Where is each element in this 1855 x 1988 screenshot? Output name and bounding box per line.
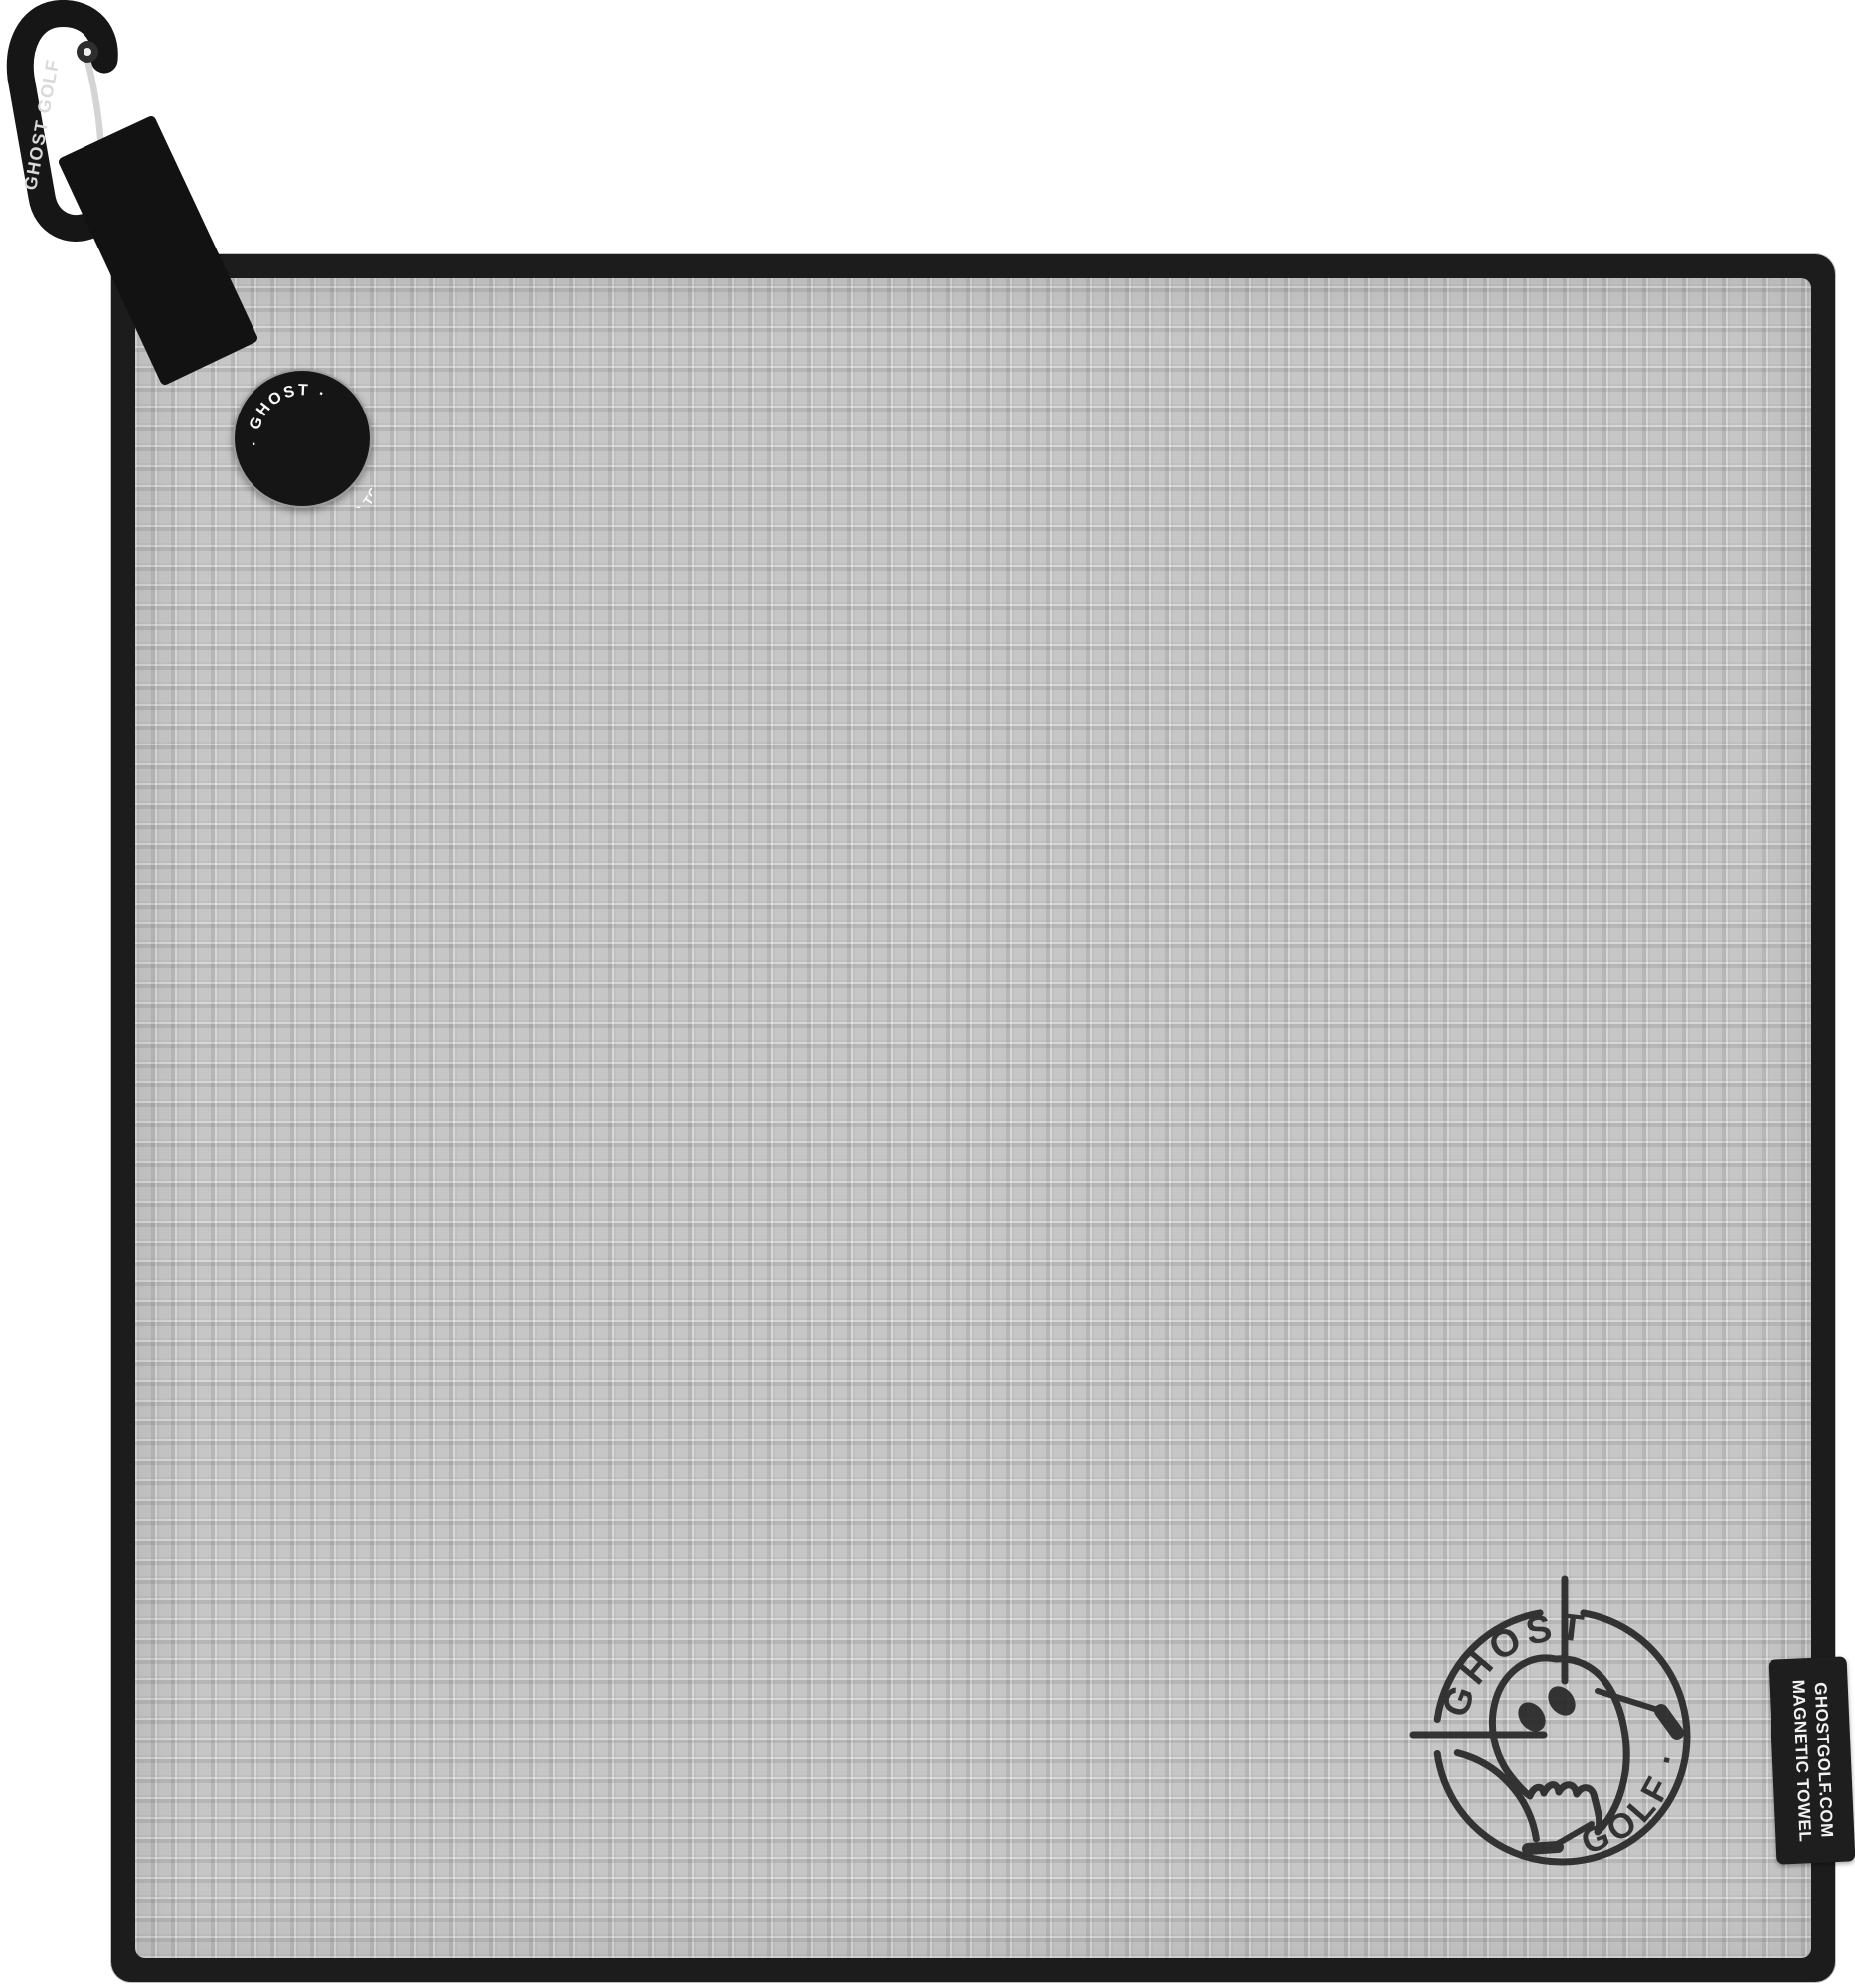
ghost-eye-right: [1543, 1681, 1582, 1721]
ghost-icon: [1492, 1658, 1626, 1832]
carabiner-strap: [64, 121, 253, 380]
golf-club-head-icon: [1661, 1711, 1677, 1733]
golf-club-icon: [1598, 1691, 1661, 1711]
stamp-arc-bottom-label: · GOLF ·: [1555, 1745, 1688, 1864]
svg-text:· GOLF ·: · GOLF ·: [1555, 1745, 1688, 1864]
side-tag-text: GHOSTGOLF.COM MAGNETIC TOWEL: [1786, 1678, 1837, 1842]
ghost-eye-left: [1513, 1697, 1552, 1737]
golf-club-small-head-icon: [1528, 1847, 1558, 1849]
product-photo: · GHOST · MAGNETIC TOWEL: [0, 0, 1855, 1988]
carabiner-rivet-pin-icon: [84, 48, 91, 56]
patch-arc-bottom-label: MAGNETIC TOWEL: [285, 448, 372, 508]
svg-text:MAGNETIC TOWEL: MAGNETIC TOWEL: [285, 448, 372, 508]
side-tag: GHOSTGOLF.COM MAGNETIC TOWEL: [1769, 1656, 1855, 1864]
stamp-logo: GHOST · GOLF ·: [1383, 1558, 1741, 1915]
carabiner: GHOST GOLF: [0, 0, 298, 427]
